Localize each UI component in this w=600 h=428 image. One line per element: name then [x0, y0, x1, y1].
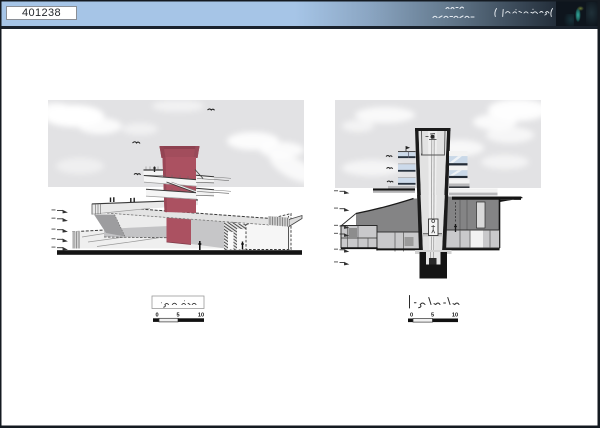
svg-text:5: 5 [176, 313, 179, 319]
svg-text:0: 0 [155, 313, 158, 319]
svg-text:10: 10 [198, 313, 204, 319]
svg-text:10: 10 [452, 313, 458, 319]
svg-text:0: 0 [410, 313, 413, 319]
svg-text:5: 5 [431, 313, 434, 319]
